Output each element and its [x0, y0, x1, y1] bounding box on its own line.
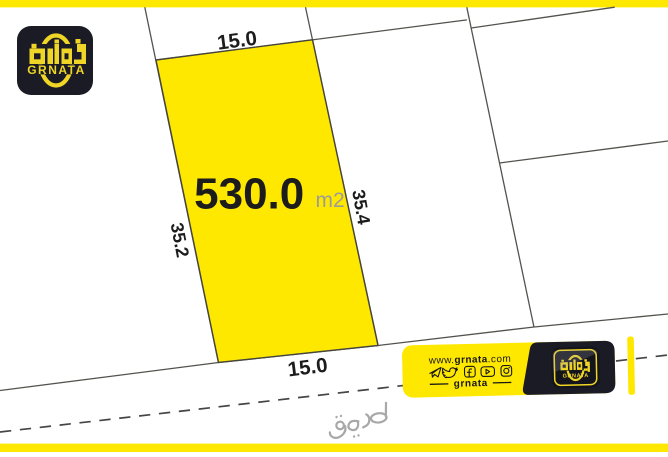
- svg-text:GRNATA: GRNATA: [27, 63, 86, 77]
- svg-text:GRNATA: GRNATA: [563, 373, 589, 380]
- svg-text:530.0: 530.0: [194, 170, 304, 219]
- svg-text:grnata: grnata: [454, 378, 488, 390]
- svg-text:m2: m2: [316, 189, 345, 212]
- svg-text:www.grnata.com: www.grnata.com: [428, 354, 512, 367]
